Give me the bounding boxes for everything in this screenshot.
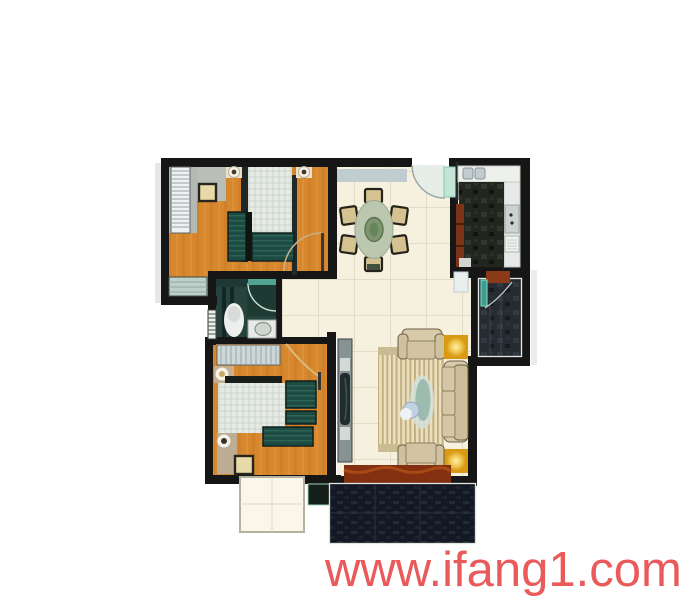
svg-text:www.ifang1.com: www.ifang1.com [324,543,682,597]
